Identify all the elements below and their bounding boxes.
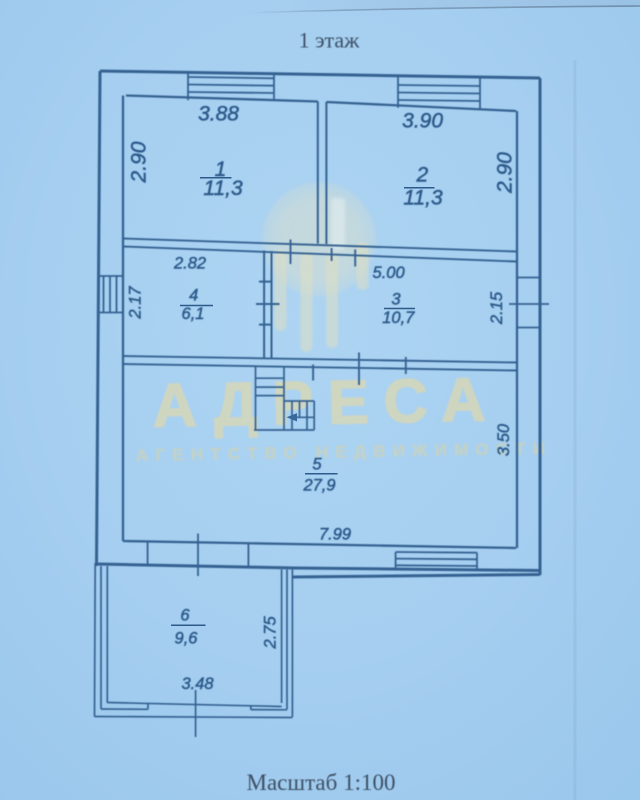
svg-text:АДРЕСА: АДРЕСА bbox=[152, 365, 501, 440]
svg-text:27,9: 27,9 bbox=[302, 477, 335, 495]
svg-text:6: 6 bbox=[180, 607, 190, 625]
svg-text:10,7: 10,7 bbox=[382, 309, 415, 327]
svg-text:3.90: 3.90 bbox=[402, 110, 443, 133]
svg-text:4: 4 bbox=[189, 287, 198, 305]
svg-text:9,6: 9,6 bbox=[175, 630, 199, 648]
svg-text:3: 3 bbox=[391, 291, 401, 309]
svg-text:11,3: 11,3 bbox=[403, 187, 443, 210]
svg-text:2.17: 2.17 bbox=[126, 286, 144, 320]
svg-text:2.90: 2.90 bbox=[127, 141, 150, 183]
svg-text:7.99: 7.99 bbox=[319, 526, 351, 544]
svg-text:11,3: 11,3 bbox=[203, 177, 243, 200]
svg-text:6,1: 6,1 bbox=[182, 305, 205, 323]
svg-text:2: 2 bbox=[416, 164, 429, 187]
svg-text:3.50: 3.50 bbox=[495, 423, 513, 456]
svg-text:2.82: 2.82 bbox=[173, 255, 206, 273]
svg-text:3.88: 3.88 bbox=[198, 103, 239, 126]
svg-text:5: 5 bbox=[312, 456, 322, 474]
svg-text:2.75: 2.75 bbox=[262, 616, 280, 650]
svg-text:2.15: 2.15 bbox=[488, 291, 506, 325]
svg-text:5.00: 5.00 bbox=[373, 264, 406, 282]
svg-text:Масштаб 1:100: Масштаб 1:100 bbox=[247, 770, 396, 795]
svg-text:2.90: 2.90 bbox=[494, 152, 517, 194]
svg-text:1 этаж: 1 этаж bbox=[299, 28, 361, 53]
svg-text:3.48: 3.48 bbox=[181, 675, 214, 693]
